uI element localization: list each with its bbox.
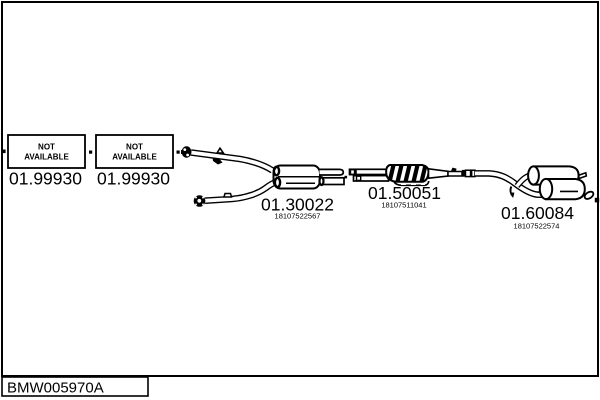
svg-text:18107522567: 18107522567 — [275, 212, 321, 221]
svg-text:AVAILABLE: AVAILABLE — [112, 153, 157, 162]
svg-text:01.99930: 01.99930 — [97, 169, 170, 189]
svg-text:NOT: NOT — [126, 143, 143, 152]
svg-text:01.99930: 01.99930 — [9, 169, 82, 189]
svg-text:BMW005970A: BMW005970A — [7, 380, 104, 397]
svg-text:18107511041: 18107511041 — [381, 200, 426, 209]
svg-text:18107522574: 18107522574 — [514, 221, 560, 230]
svg-text:01.60084: 01.60084 — [501, 203, 574, 223]
svg-text:NOT: NOT — [38, 143, 55, 152]
svg-text:AVAILABLE: AVAILABLE — [24, 153, 69, 162]
